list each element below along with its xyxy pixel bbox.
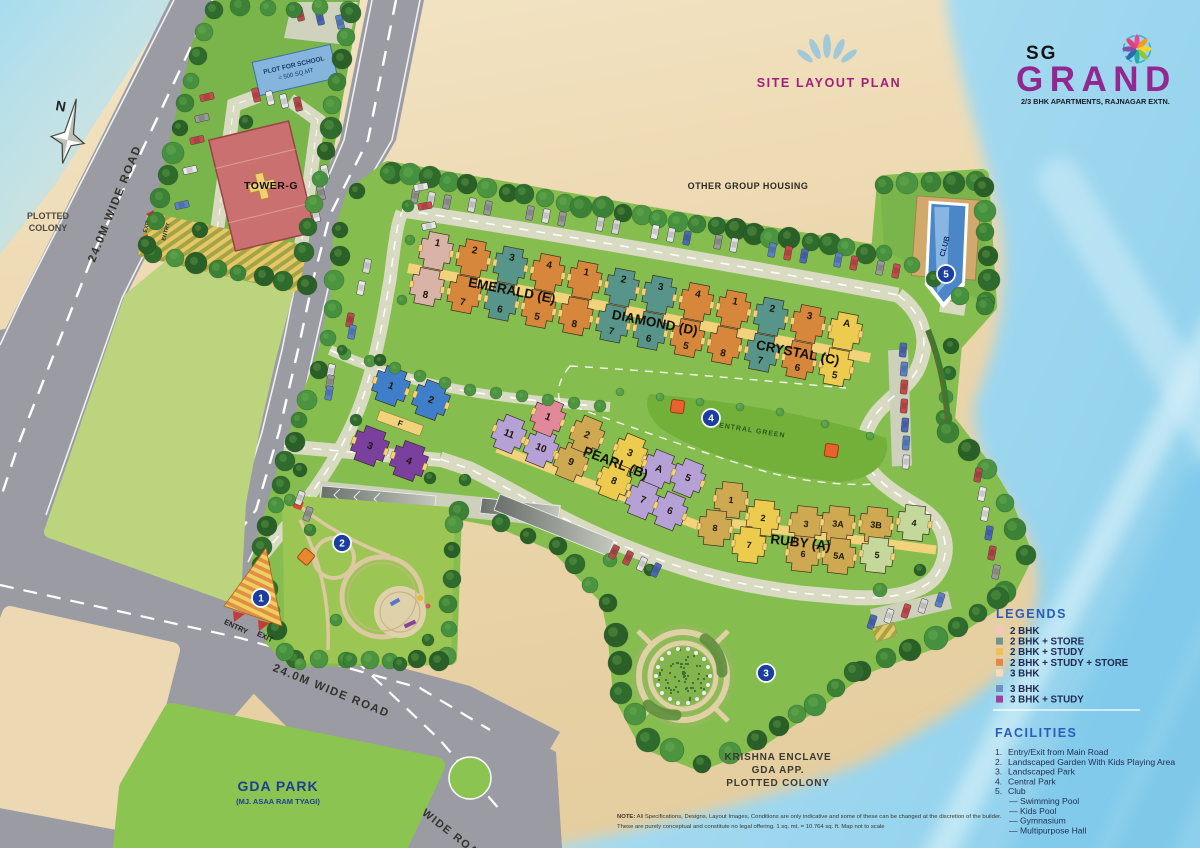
svg-text:GDA PARK: GDA PARK (237, 778, 318, 794)
svg-text:5: 5 (943, 270, 949, 281)
svg-text:3: 3 (803, 519, 809, 529)
svg-text:5: 5 (874, 550, 880, 560)
svg-text:2/3 BHK APARTMENTS, RAJNAGAR E: 2/3 BHK APARTMENTS, RAJNAGAR EXTN. (1021, 97, 1170, 106)
svg-text:SITE LAYOUT PLAN: SITE LAYOUT PLAN (757, 76, 902, 90)
svg-text:2 BHK + STORE: 2 BHK + STORE (1010, 637, 1085, 648)
svg-text:Landscaped Park: Landscaped Park (1008, 767, 1076, 777)
svg-text:— Swimming Pool: — Swimming Pool (1009, 796, 1079, 806)
svg-text:KRISHNA ENCLAVE: KRISHNA ENCLAVE (724, 752, 831, 763)
svg-text:3.: 3. (995, 767, 1002, 777)
svg-text:FACILITIES: FACILITIES (995, 726, 1077, 740)
svg-text:4.: 4. (995, 776, 1002, 786)
svg-text:— Gymnasium: — Gymnasium (1009, 816, 1066, 826)
svg-text:3A: 3A (832, 518, 845, 529)
svg-text:LEGENDS: LEGENDS (996, 607, 1067, 621)
svg-text:— Multipurpose Hall: — Multipurpose Hall (1009, 825, 1086, 835)
svg-text:4: 4 (708, 414, 714, 425)
svg-text:2 BHK + STUDY + STORE: 2 BHK + STUDY + STORE (1010, 658, 1129, 669)
svg-text:2: 2 (760, 513, 766, 523)
svg-text:8: 8 (712, 523, 718, 533)
svg-text:7: 7 (746, 540, 752, 550)
svg-text:1.: 1. (995, 747, 1002, 757)
svg-text:1: 1 (258, 594, 264, 605)
svg-text:TOWER-G: TOWER-G (244, 180, 298, 192)
svg-text:OTHER GROUP HOUSING: OTHER GROUP HOUSING (688, 181, 809, 191)
svg-text:GRAND: GRAND (1016, 60, 1177, 99)
svg-text:GDA APP.: GDA APP. (752, 765, 805, 776)
svg-text:Club: Club (1008, 786, 1026, 796)
svg-text:NOTE: All Specifications, Desi: NOTE: All Specifications, Designs, Layou… (617, 814, 1002, 820)
svg-text:2 BHK: 2 BHK (1010, 626, 1039, 637)
svg-text:These are purely conceptual an: These are purely conceptual and constitu… (617, 824, 885, 830)
svg-text:PLOTTED: PLOTTED (27, 211, 69, 221)
svg-text:1: 1 (728, 495, 734, 505)
svg-text:5.: 5. (995, 786, 1002, 796)
svg-text:3B: 3B (870, 519, 883, 530)
svg-text:— Kids Pool: — Kids Pool (1009, 806, 1056, 816)
svg-text:COLONY: COLONY (29, 223, 68, 233)
svg-text:4: 4 (911, 518, 917, 528)
svg-text:Central Park: Central Park (1008, 776, 1056, 786)
svg-text:3 BHK: 3 BHK (1010, 684, 1039, 695)
svg-text:(MJ. ASAA RAM TYAGI): (MJ. ASAA RAM TYAGI) (236, 797, 320, 806)
svg-text:2 BHK + STUDY: 2 BHK + STUDY (1010, 647, 1084, 658)
svg-text:Landscaped Garden With Kids Pl: Landscaped Garden With Kids Playing Area (1008, 757, 1175, 767)
svg-text:3 BHK: 3 BHK (1010, 668, 1039, 679)
svg-text:PLOTTED COLONY: PLOTTED COLONY (726, 778, 829, 789)
svg-text:5A: 5A (833, 550, 846, 561)
svg-text:2.: 2. (995, 757, 1002, 767)
svg-text:2: 2 (339, 539, 345, 550)
svg-text:Entry/Exit from Main Road: Entry/Exit from Main Road (1008, 747, 1109, 757)
svg-text:3: 3 (763, 669, 769, 680)
svg-text:3 BHK + STUDY: 3 BHK + STUDY (1010, 695, 1084, 706)
